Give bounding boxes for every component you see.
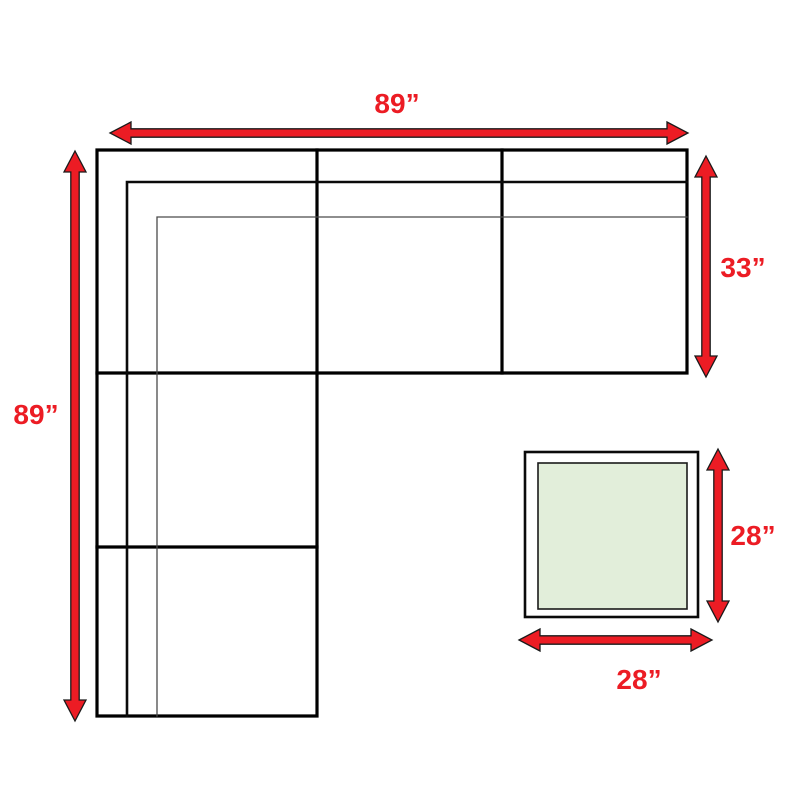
dimension-arrows [64,122,729,721]
section-depth-label: 33” [720,252,765,283]
sofa-width-arrow [110,122,688,144]
ottoman-width-label: 28” [616,664,661,695]
sectional-sofa [97,150,687,716]
ottoman [525,452,698,617]
sofa-outer-boundary [97,150,687,716]
ottoman-cushion [538,463,687,609]
sofa-dimension-diagram: 89” 89” 33” 28” 28” [0,0,800,800]
ottoman-width-arrow [519,629,712,651]
sofa-length-arrow [64,151,86,721]
diagram-canvas: 89” 89” 33” 28” 28” [0,0,800,800]
sofa-length-label: 89” [13,399,58,430]
ottoman-depth-label: 28” [730,520,775,551]
sofa-width-label: 89” [374,88,419,119]
section-depth-arrow [695,156,717,377]
ottoman-depth-arrow [707,449,729,622]
